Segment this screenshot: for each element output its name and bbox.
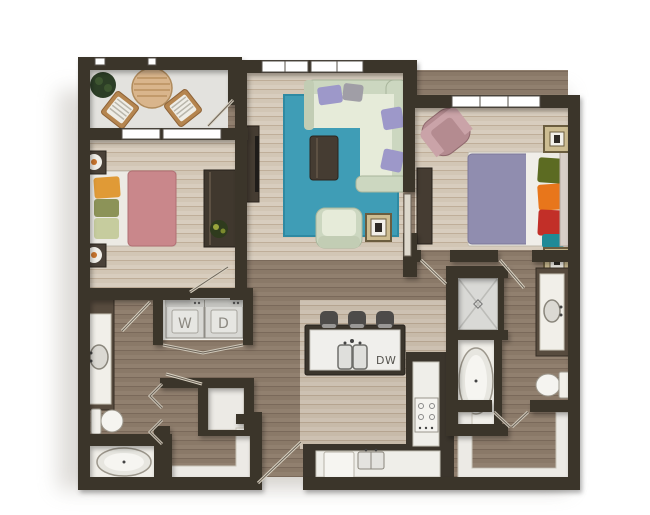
bedroom2-window — [452, 96, 540, 107]
bedroom1-window — [122, 129, 160, 139]
range-icon — [415, 398, 438, 432]
washer-label: W — [178, 316, 192, 332]
dryer-label: D — [218, 316, 229, 332]
faucet-icon — [350, 339, 354, 343]
bed1-pillows — [93, 176, 120, 239]
dresser-bed2 — [417, 168, 432, 244]
end-table-with-lamp — [366, 214, 391, 241]
nightstand-bed2-top — [544, 126, 570, 152]
bedroom1-window — [163, 129, 221, 139]
dresser-bed1 — [204, 170, 238, 247]
bathtub1 — [90, 446, 160, 477]
refrigerator-icon — [324, 452, 354, 478]
drain-icon — [123, 461, 126, 464]
dryer-icon: D — [205, 300, 243, 338]
bed2 — [468, 152, 570, 248]
sink-icon — [90, 345, 108, 369]
floor-plan-page: DW — [0, 0, 650, 515]
bar-stools — [320, 311, 394, 328]
lamp-icon — [554, 135, 560, 143]
balcony-wall-notch — [148, 58, 156, 65]
dishwasher-label: DW — [376, 354, 396, 367]
toilet1-icon — [91, 409, 123, 434]
washer-icon: W — [166, 300, 204, 338]
tv-icon — [255, 136, 259, 192]
balcony-wall-notch — [95, 58, 105, 65]
drain-icon — [475, 380, 478, 383]
floor-plan: DW — [0, 0, 650, 515]
potted-plant-icon — [90, 72, 116, 98]
plant-icon — [210, 220, 228, 238]
lamp-icon — [375, 223, 382, 232]
laundry-closet: W D — [163, 298, 243, 340]
bed2-headboard — [560, 152, 569, 246]
kitchen-island: DW — [305, 325, 405, 375]
accent-chair — [316, 208, 362, 248]
bed1 — [84, 169, 176, 248]
toilet2-icon — [536, 372, 570, 398]
kitchen-sink-icon — [358, 449, 384, 469]
patio-table — [132, 68, 172, 108]
coffee-table — [310, 136, 338, 180]
sink-icon — [544, 300, 560, 322]
shower-icon — [458, 278, 498, 330]
